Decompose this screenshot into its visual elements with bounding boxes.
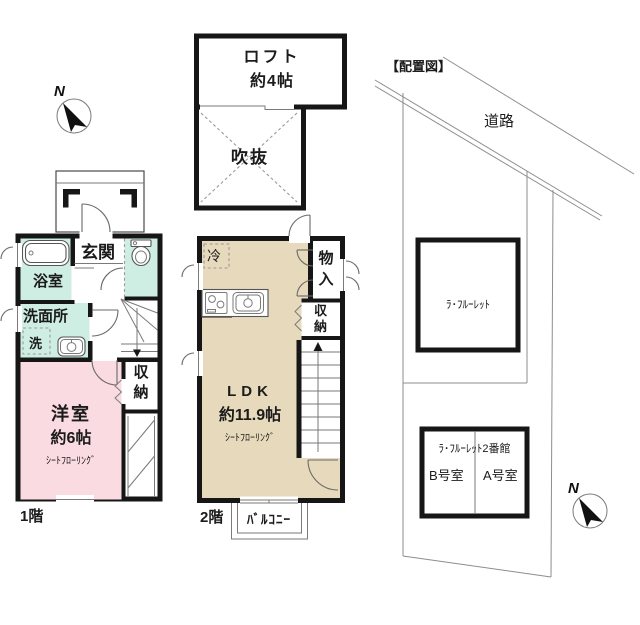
ldk-label: LDK <box>198 383 302 400</box>
bathroom-label: 浴室 <box>22 270 74 291</box>
flooring-label-1f: ｼｰﾄﾌﾛｰﾘﾝｸﾞ <box>20 452 122 467</box>
western-room-label: 洋室 <box>20 400 122 426</box>
floor1-label: 1階 <box>20 505 43 526</box>
site-plan-block: N <box>375 57 634 577</box>
floor2-label: 2階 <box>200 506 223 527</box>
western-room-size-label: 約6帖 <box>20 424 122 448</box>
storage-label-1f: 収納 <box>132 363 150 402</box>
washroom-label: 洗面所 <box>23 305 68 326</box>
porch-corner-bracket <box>120 189 137 208</box>
loft-size-label: 約4帖 <box>200 67 344 91</box>
road-label: 道路 <box>484 110 514 131</box>
floor2-entrance-door-arc <box>289 215 310 243</box>
room-a-label: A号室 <box>483 465 518 484</box>
compass-n-label: N <box>568 480 580 497</box>
washer-label: 洗 <box>29 333 42 352</box>
closet-label: 物入 <box>317 248 335 290</box>
entrance-door-arc <box>80 204 113 239</box>
kitchen-counter <box>202 290 268 317</box>
site-plan-title: 【配置図】 <box>386 56 451 75</box>
void-label: 吹抜 <box>198 143 302 168</box>
porch <box>56 171 144 232</box>
floorplan-canvas: N <box>0 0 640 625</box>
compass-icon: N <box>54 83 91 133</box>
loft-label: ロフト <box>200 43 344 67</box>
road-lines <box>375 57 634 220</box>
room-b-label: B号室 <box>429 465 464 484</box>
compass-n-label: N <box>54 83 66 100</box>
toilet-icon <box>131 240 151 266</box>
bathtub-icon <box>23 241 70 266</box>
building-1 <box>418 240 518 350</box>
compass-icon: N <box>568 480 607 528</box>
flooring-label-2f: ｼｰﾄﾌﾛｰﾘﾝｸﾞ <box>198 429 302 444</box>
storage-label-2f: 収納 <box>312 303 329 336</box>
balcony-label: ﾊﾞﾙｺﾆｰ <box>234 509 304 528</box>
ldk-size-label: 約11.9帖 <box>198 401 302 425</box>
building2-label: ﾗ･ﾌﾙｰﾚｯﾄ2番館 <box>423 440 526 456</box>
entrance-label: 玄関 <box>74 238 122 263</box>
building1-label: ﾗ･ﾌﾙｰﾚｯﾄ <box>418 296 518 312</box>
washroom-sink-icon <box>58 337 85 356</box>
porch-corner-bracket <box>63 189 80 208</box>
fridge-label: 冷 <box>207 246 221 266</box>
stairs2f-area <box>302 340 341 458</box>
